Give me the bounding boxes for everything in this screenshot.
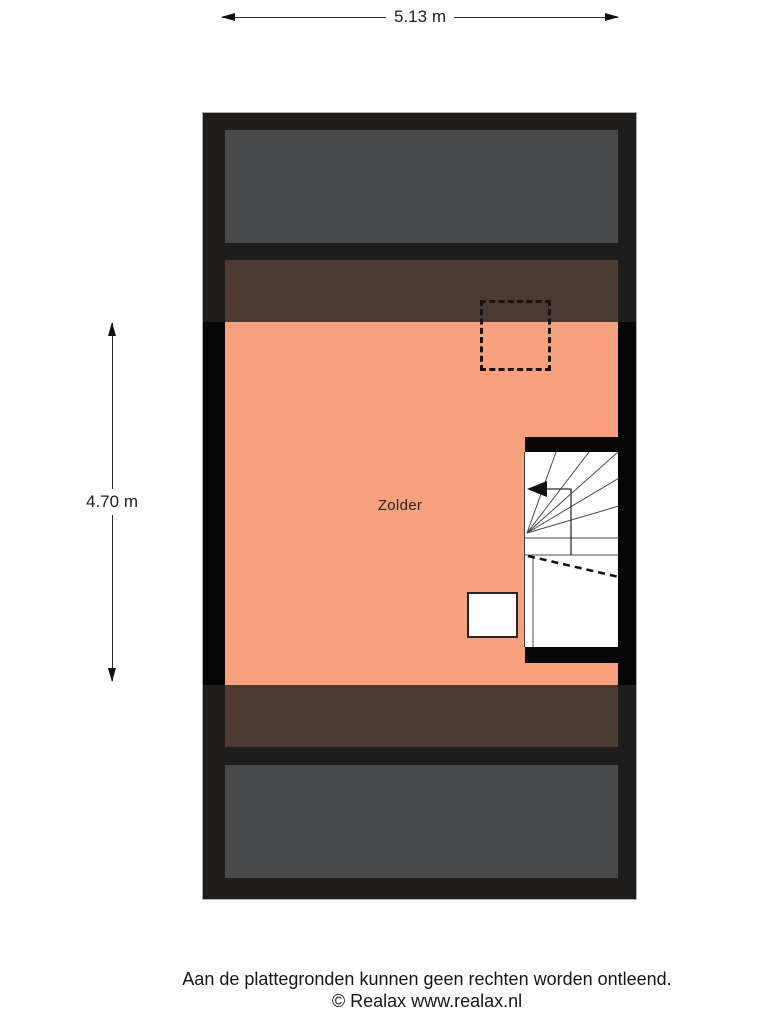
shaft-box	[467, 592, 518, 638]
arrow-right-icon	[605, 13, 619, 21]
stair-direction-arrow-icon	[527, 481, 547, 497]
dimension-width-label: 5.13 m	[386, 6, 454, 28]
disclaimer-text: Aan de plattegronden kunnen geen rechten…	[87, 968, 767, 991]
roof-area-top	[225, 130, 618, 243]
roof-area-bottom	[225, 765, 618, 878]
dimension-height: 4.70 m	[104, 323, 122, 681]
room-label: Zolder	[340, 497, 460, 514]
floorplan: Zolder	[203, 113, 636, 899]
staircase-wall-bottom	[525, 647, 618, 663]
skylight-dashed-outline	[480, 300, 551, 371]
wall-left	[203, 322, 225, 685]
stair-walk-line	[547, 489, 571, 555]
staircase-drawing	[525, 452, 619, 647]
copyright-text: © Realax www.realax.nl	[87, 991, 767, 1012]
arrow-down-icon	[108, 668, 116, 682]
dimension-height-label: 4.70 m	[84, 489, 140, 515]
roof-strip-bottom	[225, 685, 618, 747]
staircase	[524, 452, 618, 647]
staircase-wall-top	[525, 437, 618, 452]
dimension-width: 5.13 m	[222, 9, 618, 27]
roof-strip-top	[225, 260, 618, 322]
arrow-up-icon	[108, 322, 116, 336]
wall-right	[618, 322, 636, 685]
footer: Aan de plattegronden kunnen geen rechten…	[87, 968, 767, 1012]
arrow-left-icon	[221, 13, 235, 21]
floorplan-page: 5.13 m 4.70 m	[0, 0, 768, 1024]
